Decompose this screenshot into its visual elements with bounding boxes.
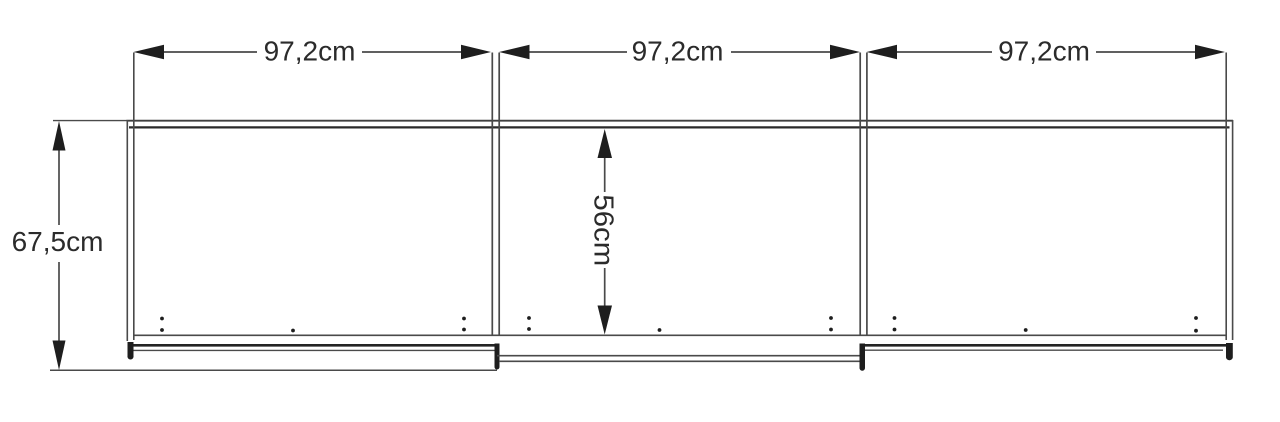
svg-text:97,2cm: 97,2cm xyxy=(264,36,356,67)
svg-text:56cm: 56cm xyxy=(588,194,619,266)
svg-text:97,2cm: 97,2cm xyxy=(998,36,1090,67)
svg-text:67,5cm: 67,5cm xyxy=(12,226,104,257)
svg-text:97,2cm: 97,2cm xyxy=(632,36,724,67)
